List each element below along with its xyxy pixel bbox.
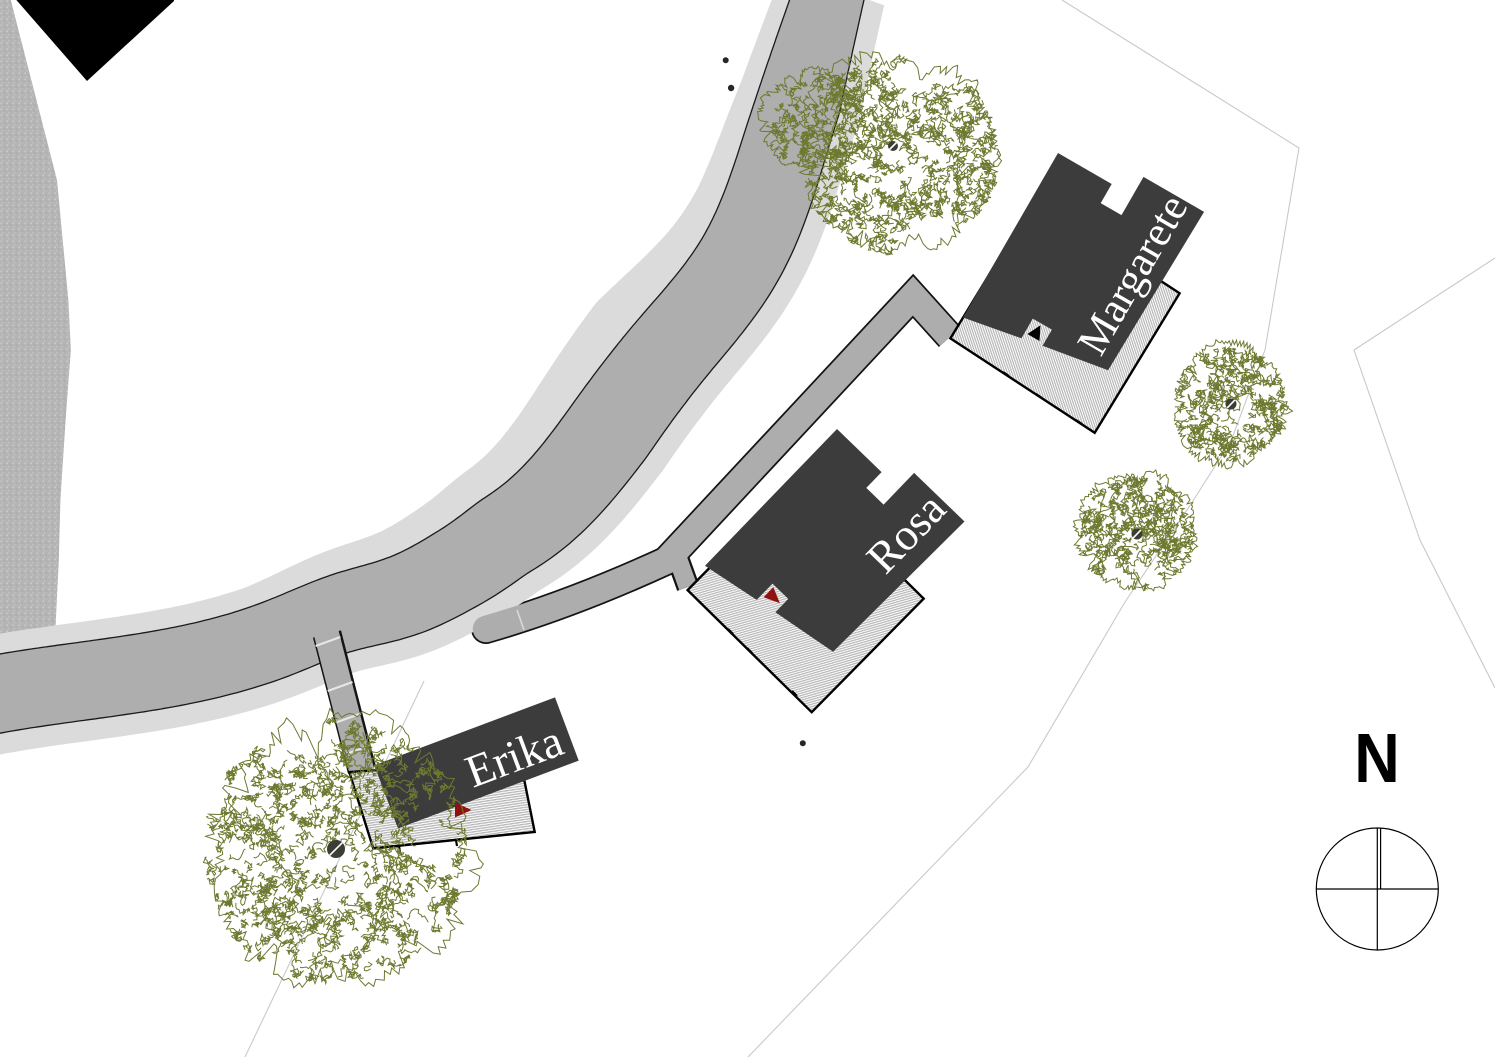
svg-text:N: N [1354, 720, 1399, 798]
